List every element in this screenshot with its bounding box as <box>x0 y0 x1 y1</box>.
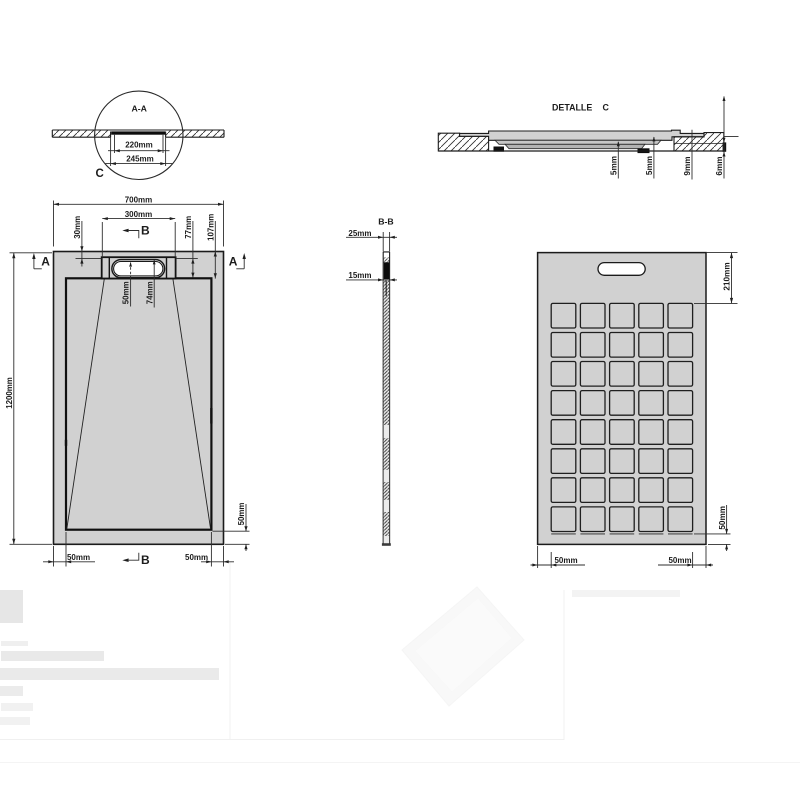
svg-text:50mm: 50mm <box>554 556 577 565</box>
svg-text:5mm: 5mm <box>609 156 618 175</box>
svg-text:700mm: 700mm <box>125 196 153 205</box>
svg-text:300mm: 300mm <box>125 210 153 219</box>
svg-text:25mm: 25mm <box>348 229 371 238</box>
svg-text:245mm: 245mm <box>126 154 154 163</box>
svg-text:220mm: 220mm <box>125 141 153 150</box>
svg-text:50mm: 50mm <box>185 553 208 562</box>
svg-text:B: B <box>141 224 150 238</box>
svg-text:B: B <box>141 553 150 567</box>
svg-text:A-A: A-A <box>131 104 147 114</box>
svg-text:30mm: 30mm <box>73 216 82 239</box>
svg-text:15mm: 15mm <box>348 271 371 280</box>
svg-text:B-B: B-B <box>378 217 393 227</box>
svg-text:9mm: 9mm <box>683 156 692 175</box>
svg-text:50mm: 50mm <box>668 556 691 565</box>
svg-text:50mm: 50mm <box>718 506 727 530</box>
svg-text:77mm: 77mm <box>184 216 193 239</box>
svg-text:50mm: 50mm <box>122 281 131 304</box>
svg-text:C: C <box>96 168 104 180</box>
svg-text:210mm: 210mm <box>723 262 732 290</box>
svg-text:50mm: 50mm <box>237 503 246 526</box>
svg-text:A: A <box>41 255 50 269</box>
svg-text:5mm: 5mm <box>645 156 654 175</box>
svg-text:50mm: 50mm <box>67 553 90 562</box>
svg-text:107mm: 107mm <box>206 214 215 241</box>
svg-text:74mm: 74mm <box>145 281 154 304</box>
svg-text:1200mm: 1200mm <box>5 377 14 409</box>
svg-text:A: A <box>229 255 238 269</box>
svg-text:DETALLE: DETALLE <box>552 102 592 112</box>
svg-text:6mm: 6mm <box>715 156 724 175</box>
svg-text:C: C <box>603 102 610 112</box>
